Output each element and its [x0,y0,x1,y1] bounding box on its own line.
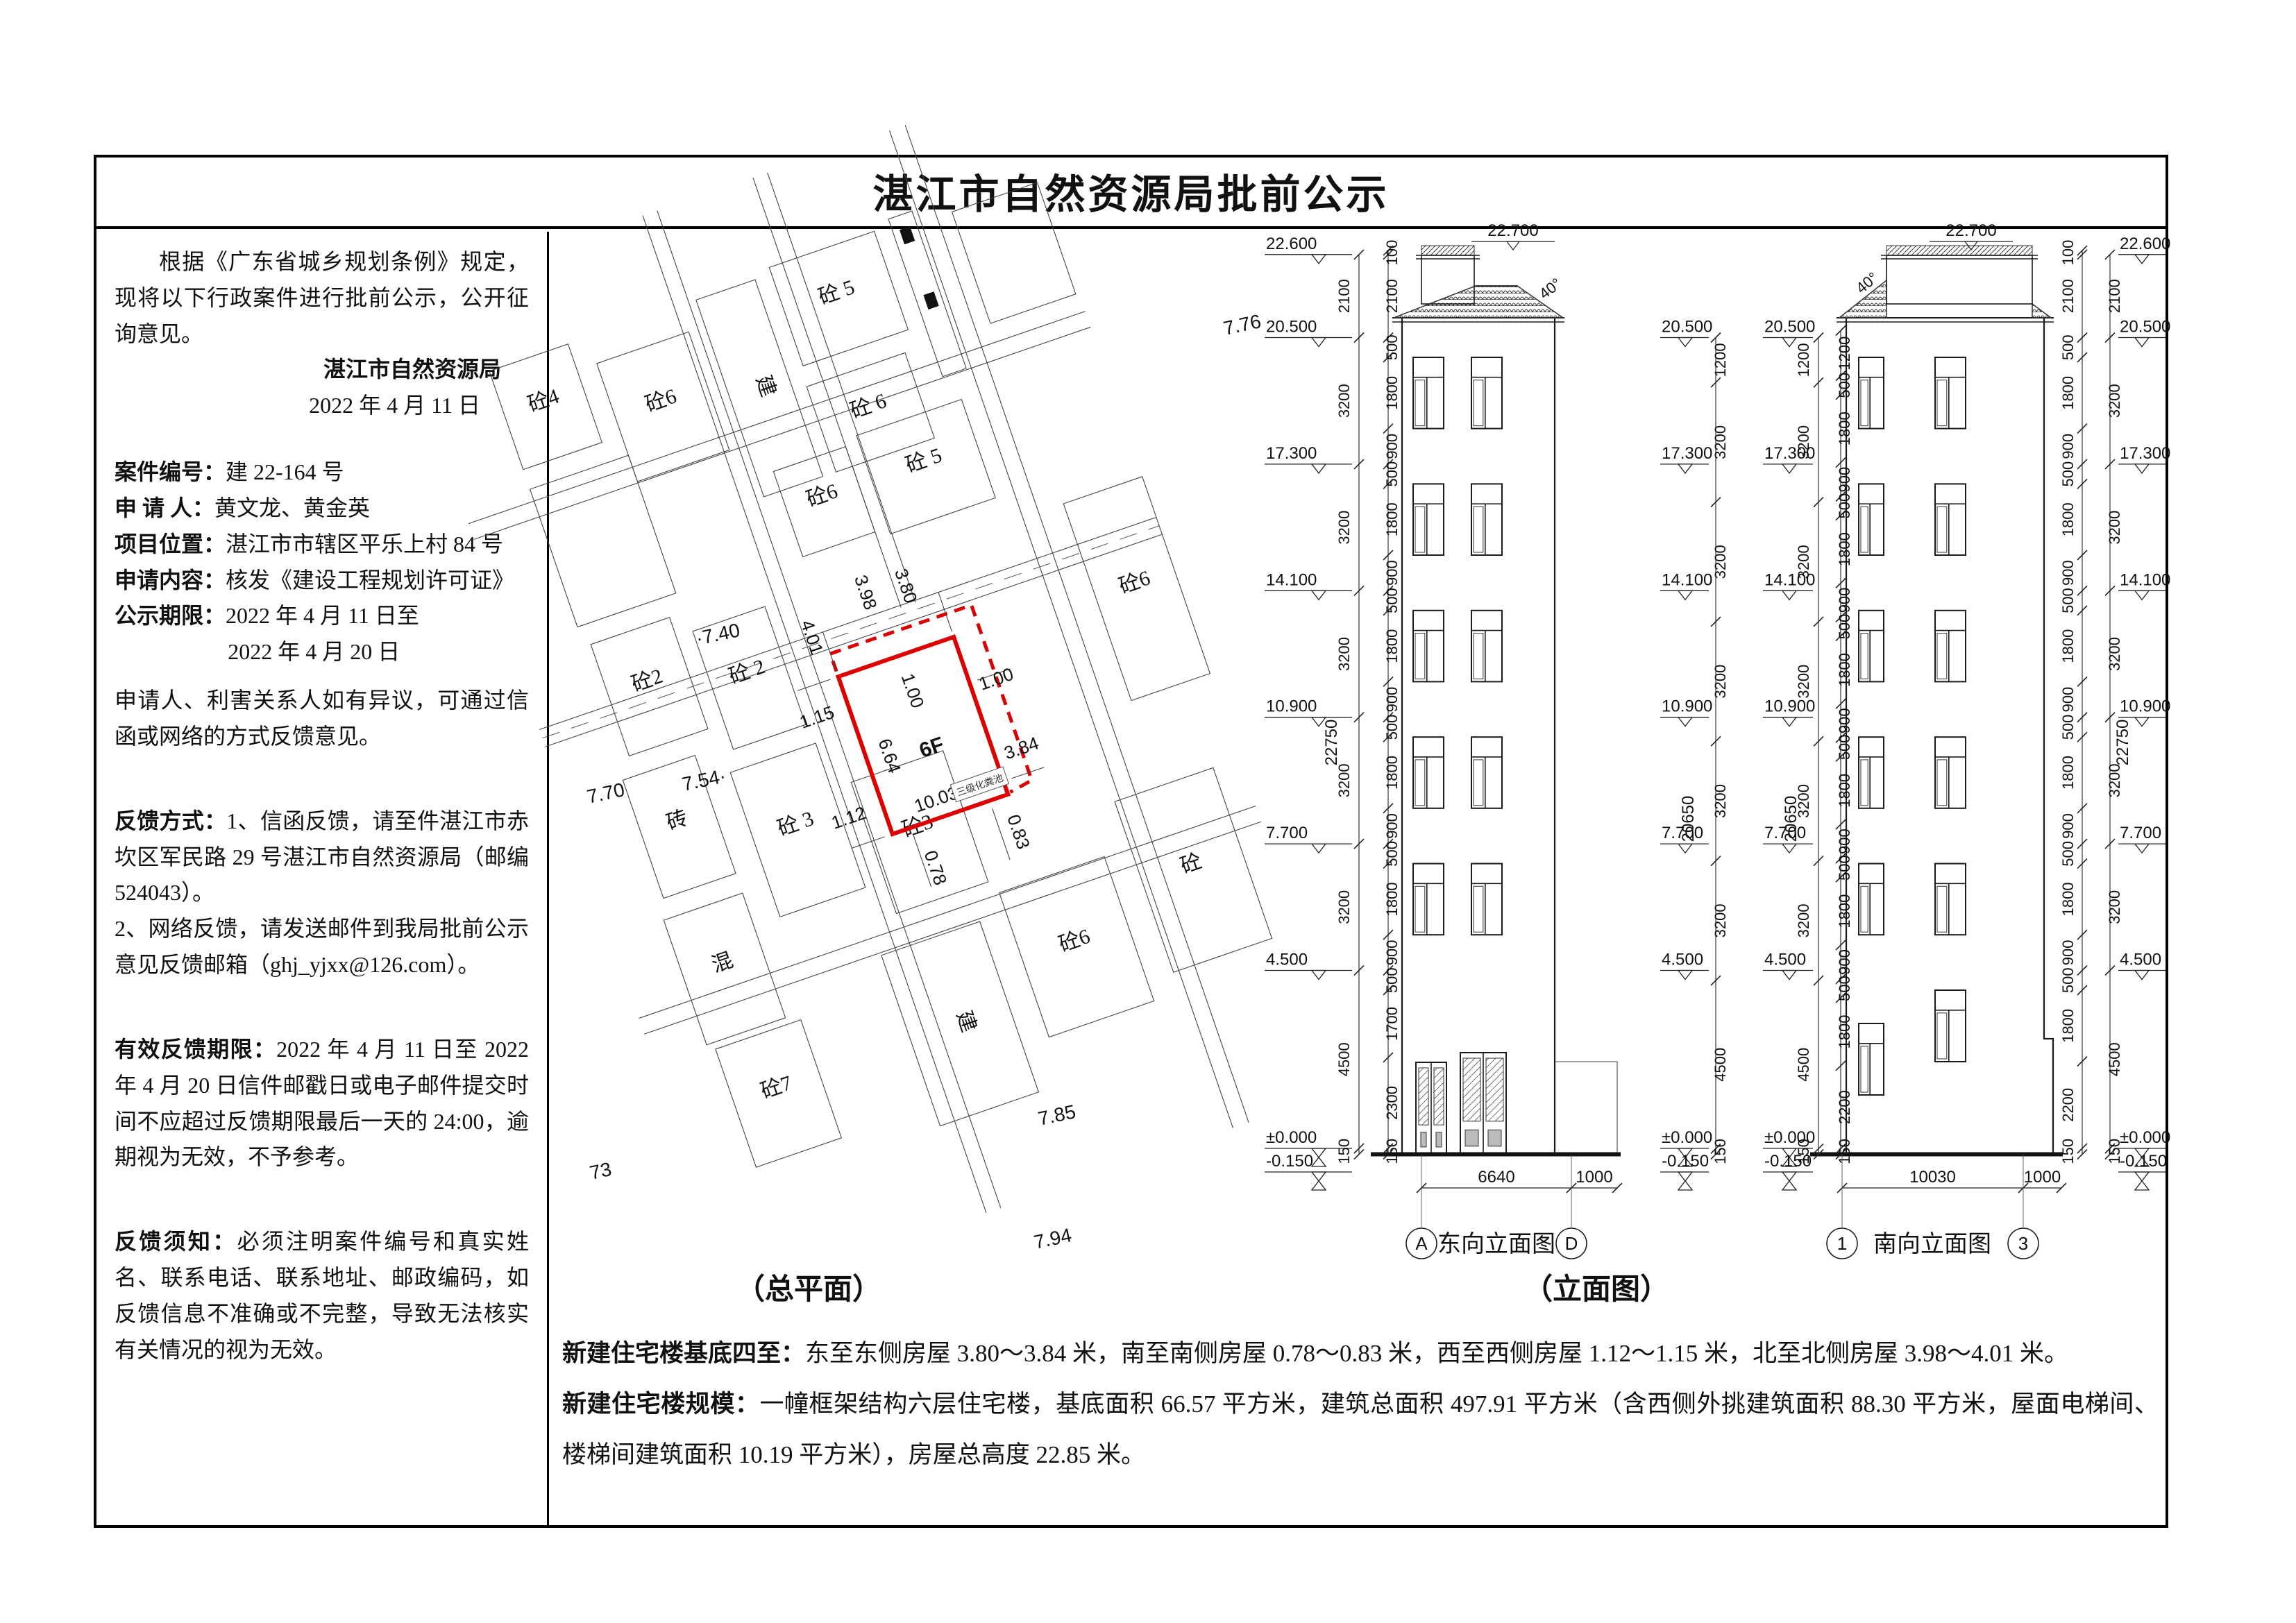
level-triangle [1312,464,1326,473]
dim-value: 3200 [1335,763,1353,797]
dim-value: 3200 [1795,665,1812,699]
plot-dim: 1.00 [976,663,1016,695]
window-casement [1415,760,1425,806]
window [1935,357,1966,429]
level-label: 10.900 [1266,697,1317,716]
dim-value: 3200 [1795,903,1812,937]
footer-note-1: 新建住宅楼基底四至：东至东侧房屋 3.80～3.84 米，南至南侧房屋 0.78… [562,1329,2159,1379]
level-label: -0.150 [1266,1152,1313,1171]
window [1859,737,1884,808]
dim-value: 2200 [2059,1088,2077,1122]
dim-value: 500 [2059,841,2077,867]
plan-building [952,182,1076,323]
street-line [546,534,1163,747]
level-label: ±0.000 [1266,1128,1317,1147]
dim-value: 3200 [2106,384,2123,418]
top-level-label: 22.700 [1945,221,1996,240]
door-panel [1488,1130,1501,1146]
dim-value: 500 [2059,461,2077,487]
dim-value: 3200 [2106,890,2123,924]
spot-elevation: ·7.40 [694,619,742,649]
window [1859,1023,1884,1095]
level-label: 14.100 [2120,570,2170,589]
dim-value: 1800 [2059,629,2077,663]
window [1471,864,1502,935]
south-elevation: 40°22.70020.50017.30014.10010.9007.7004.… [1763,221,2170,1259]
dim-value: 2300 [1383,1086,1401,1120]
level-triangle [1678,717,1692,726]
plan-building-label: 砼 5 [816,275,857,309]
level-triangle [1782,717,1796,726]
bottom-dim-value: 1000 [2024,1168,2061,1187]
level-label: 4.500 [1266,951,1308,969]
plan-building-label: 砼6 [804,479,841,511]
grid-bubble-label: 3 [2018,1233,2028,1254]
window-casement [1937,760,1947,806]
level-triangle [1678,338,1692,347]
street-centerline [542,526,1159,738]
level-triangle [2135,338,2149,347]
dim-value: 150 [1836,1139,1853,1164]
footer-note-2-label: 新建住宅楼规模： [562,1391,759,1418]
door-panel [1436,1132,1442,1147]
dim-value: 3200 [1335,890,1353,924]
window [1935,611,1966,682]
grid-bubble-label: A [1415,1233,1428,1254]
window-casement [1474,507,1483,552]
dim-value: 500 [2059,334,2077,360]
level-label: 4.500 [1662,951,1703,969]
dim-value: 900 [2059,940,2077,965]
plot-dim: 3.84 [1002,732,1042,763]
level-triangle [1678,1172,1692,1181]
plan-building-label: 砼6 [1116,566,1153,598]
dim-value: 3200 [2106,763,2123,797]
window-casement [1861,507,1868,552]
dim-value: 900 [1383,813,1401,839]
penthouse-railing [1421,246,1474,255]
dim-total: 22750 [1322,720,1341,766]
plot-dim: 0.83 [1003,812,1034,852]
window-casement [1474,886,1483,932]
plan-building-label: 砼2 [629,665,666,697]
dim-value: 900 [1383,434,1401,459]
dim-value: 1800 [1836,774,1853,808]
penthouse [1886,255,2032,304]
window [1935,484,1966,555]
plan-building-label: 砼 [1178,849,1205,878]
plan-building-label: 砼7 [758,1071,795,1103]
level-label: 20.500 [1764,318,1815,337]
street-line [890,130,1233,1128]
level-triangle [2135,255,2149,264]
plot-dim: 6.64 [874,736,905,776]
level-triangle [1782,464,1796,473]
dim-value: 4500 [1335,1042,1353,1076]
window-casement [1937,634,1947,679]
window-casement [1474,380,1483,426]
level-label: 17.300 [1662,444,1712,463]
plan-mark [900,226,915,244]
level-label: 7.700 [2120,824,2161,842]
street-line [639,806,1256,1019]
dim-value: 150 [1795,1139,1812,1164]
window [1859,864,1884,935]
street-line [905,125,1249,1122]
dim-value: 1800 [1383,882,1401,916]
dim-value: 900 [2059,813,2077,839]
grid-bubble-label: D [1565,1233,1578,1254]
dim-value: 3200 [1795,545,1812,579]
level-triangle [2135,590,2149,600]
spot-elevation: 7.70 [585,779,627,808]
bottom-dim-value: 1000 [1576,1168,1612,1187]
plan-building-label: 砼6 [643,384,679,416]
dim-value: 3200 [1712,425,1729,459]
dim-value: 1800 [1836,532,1853,566]
level-triangle [1312,338,1326,347]
dim-total: 20650 [1679,796,1698,842]
dim-value: 1800 [1836,894,1853,928]
level-label: 10.900 [1662,697,1712,716]
footer-notes: 新建住宅楼基底四至：东至东侧房屋 3.80～3.84 米，南至南侧房屋 0.78… [562,1329,2159,1480]
east-elevation-caption: 东向立面图 [1437,1231,1555,1257]
dim-value: 2100 [2059,279,2077,313]
level-label: 22.600 [2120,235,2170,253]
window [1471,357,1502,429]
dim-value: 100 [2059,240,2077,266]
dim-total: 20650 [1782,796,1800,842]
window [1471,737,1502,808]
level-triangle [1782,971,1796,980]
dim-value: 1800 [1383,756,1401,790]
level-label: 17.300 [1266,444,1317,463]
dim-value: 1800 [2059,502,2077,536]
dim-value: 900 [1836,588,1853,613]
window-casement [1861,1046,1868,1092]
elevations-caption: （立面图） [1523,1273,1669,1306]
dim-value: 3200 [1335,384,1353,418]
dim-value: 100 [1383,240,1401,266]
plan-building-label: 砼 2 [726,655,768,688]
level-triangle [1312,1148,1326,1157]
footer-note-1-label: 新建住宅楼基底四至： [562,1340,805,1367]
level-triangle [1782,590,1796,600]
plot-ext-line [993,808,1010,860]
dim-value: 500 [1836,373,1853,398]
plot-dim: 1.00 [897,671,929,711]
plan-building-label: 砼 6 [847,389,889,423]
dim-value: 500 [2059,967,2077,993]
side-wall [1555,1062,1617,1155]
dim-value: 500 [1383,715,1401,740]
bottom-dim-value: 6640 [1478,1168,1514,1187]
street-line [539,518,1156,730]
dim-value: 500 [1836,976,1853,1001]
plot-dim: 1.15 [797,702,837,733]
dim-value: 1800 [1383,629,1401,663]
level-triangle [2135,844,2149,853]
level-triangle [1312,971,1326,980]
window [1859,357,1884,429]
plan-rotated-group: 砼4砼6建砼 5砼 6砼 5砼6砼2砼 2砖混砼 3砼3砼6砼7建砼6砼3.98… [392,90,1353,1299]
level-triangle [1782,338,1796,347]
dim-value: 500 [2059,588,2077,613]
level-label: 14.100 [1266,570,1317,589]
plan-building-label: 建 [752,373,780,400]
level-triangle [1312,1157,1326,1166]
dim-total: 22750 [2113,720,2132,766]
dim-value: 500 [1383,967,1401,993]
level-triangle [1782,1181,1796,1190]
dim-value: 500 [1383,461,1401,487]
dim-value: 900 [2059,560,2077,586]
plot-ext-line [797,679,830,690]
dim-value: 1700 [1383,1007,1401,1041]
window-casement [1415,507,1425,552]
dim-value: 500 [1836,734,1853,760]
building-walls [1402,318,1555,1155]
level-label: ±0.000 [1662,1128,1712,1147]
window-casement [1415,886,1425,932]
dim-value: 500 [1383,588,1401,613]
dim-value: 4500 [2106,1042,2123,1076]
dim-value: 150 [1335,1139,1353,1164]
level-triangle [1312,1172,1326,1181]
dim-value: 900 [1383,560,1401,586]
window-casement [1415,634,1425,679]
level-triangle [1678,1181,1692,1190]
dim-value: 1800 [2059,1009,2077,1043]
spot-elevation: 7.94 [1032,1224,1074,1253]
level-label: -0.150 [2120,1152,2167,1171]
window [1935,864,1966,935]
drawing-captions: （总平面）（立面图） [736,1273,1669,1306]
door-glass [1419,1068,1428,1125]
top-level-label: 22.700 [1487,221,1538,240]
window-casement [1937,380,1947,426]
level-triangle [1507,241,1519,250]
dim-value: 150 [1712,1139,1729,1164]
dim-value: 1800 [2059,376,2077,410]
dim-value: 3200 [1335,511,1353,545]
level-label: 20.500 [1266,318,1317,337]
level-triangle [1312,844,1326,853]
dim-value: 900 [2059,687,2077,713]
dim-value: 500 [2059,715,2077,740]
level-triangle [1678,590,1692,600]
dim-value: 4500 [1712,1048,1729,1082]
dim-value: 1800 [1836,1015,1853,1049]
spot-elevation: 73 [588,1158,614,1184]
door-panel [1465,1130,1478,1146]
dim-value: 1800 [1383,376,1401,410]
window-casement [1937,507,1947,552]
level-triangle [2135,971,2149,980]
dim-value: 150 [1383,1139,1401,1164]
level-triangle [1678,464,1692,473]
level-triangle [1312,590,1326,600]
level-label: 14.100 [1662,570,1712,589]
dim-value: 500 [1383,841,1401,867]
footer-note-1-text: 东至东侧房屋 3.80～3.84 米，南至南侧房屋 0.78～0.83 米，西至… [805,1340,2068,1367]
dim-value: 500 [1836,614,1853,640]
dim-value: 900 [1383,687,1401,713]
street-line [644,822,1261,1034]
level-label: 4.500 [1764,951,1806,969]
dim-value: 1800 [2059,882,2077,916]
dim-value: 150 [2059,1139,2077,1164]
plot-dim: 3.98 [850,572,881,613]
level-label: ±0.000 [2120,1128,2170,1147]
window-casement [1861,760,1868,806]
plan-building-label: 砼 5 [903,443,945,477]
level-triangle [1782,844,1796,853]
window [1413,611,1444,682]
plan-building-label: 混 [709,949,736,977]
dim-value: 2100 [1335,279,1353,313]
dim-value: 900 [2059,434,2077,459]
dim-value: 3200 [1712,545,1729,579]
door-glass [1434,1068,1444,1125]
level-label: 7.700 [1266,824,1308,842]
door-glass [1486,1058,1503,1121]
dim-value: 3200 [1712,784,1729,818]
level-label: 17.300 [2120,444,2170,463]
dim-value: 900 [1836,829,1853,854]
window [1471,611,1502,682]
dim-value: 3200 [1712,903,1729,937]
dim-value: 4500 [1795,1048,1812,1082]
window-casement [1861,634,1868,679]
dim-value: 500 [1383,334,1401,360]
level-label: 10.900 [2120,697,2170,716]
spot-elevation: 7.85 [1036,1101,1078,1130]
window-casement [1474,760,1483,806]
footer-note-2-text: 一幢框架结构六层住宅楼，基底面积 66.57 平方米，建筑总面积 497.91 … [562,1391,2159,1468]
building-walls [1846,318,2053,1155]
dim-value: 900 [1836,708,1853,733]
level-triangle [1678,971,1692,980]
dim-value: 900 [1383,940,1401,965]
footer-note-2: 新建住宅楼规模：一幢框架结构六层住宅楼，基底面积 66.57 平方米，建筑总面积… [562,1379,2159,1481]
tile-roof [2032,304,2051,318]
level-triangle [1678,844,1692,853]
plan-building-label: 砖 [664,806,691,835]
level-label: 20.500 [1662,318,1712,337]
dim-value: 3200 [1795,425,1812,459]
window-casement [1937,886,1947,932]
dim-value: 1800 [1383,502,1401,536]
door-panel [1421,1132,1426,1147]
level-label: -0.150 [1662,1152,1709,1171]
window [1413,737,1444,808]
site-plan: 砼4砼6建砼 5砼 6砼 5砼6砼2砼 2砖混砼 3砼3砼6砼7建砼6砼3.98… [392,90,1353,1299]
dim-value: 2100 [2106,279,2123,313]
dim-value: 3200 [2106,511,2123,545]
window-casement [1861,380,1868,426]
dim-value: 1200 [1712,343,1729,377]
dim-value: 1800 [1836,411,1853,445]
window-casement [1861,886,1868,932]
window-casement [1937,1013,1947,1059]
level-label: 20.500 [2120,318,2170,337]
level-label: 4.500 [2120,951,2161,969]
window [1471,484,1502,555]
dim-value: 3200 [1335,637,1353,671]
level-triangle [1312,1181,1326,1190]
dim-value: 500 [1836,855,1853,881]
dim-value: 900 [1836,467,1853,493]
dim-value: 2200 [1836,1090,1853,1124]
street-line [768,173,915,602]
window [1935,990,1966,1062]
window-casement [1474,634,1483,679]
level-label: 10.900 [1764,697,1815,716]
penthouse-railing [1886,246,2032,255]
level-triangle [1312,255,1326,264]
spot-elevation: 7.54· [680,765,728,795]
dim-value: 1200 [1795,343,1812,377]
plot-dim: 0.78 [920,848,952,888]
bottom-dim-value: 10030 [1909,1168,1956,1187]
dim-value: 3200 [2106,637,2123,671]
window [1859,484,1884,555]
plot-dim: 4.01 [797,618,828,658]
plan-building-label: 砼4 [525,384,562,416]
dim-value: 900 [1836,949,1853,975]
level-triangle [2135,464,2149,473]
dim-value: 3200 [1712,665,1729,699]
level-triangle [2135,717,2149,726]
plan-building-label: 砼6 [1056,925,1092,957]
level-triangle [2135,1181,2149,1190]
roof-angle-label: 40° [1536,275,1565,303]
dim-value: 1800 [1836,653,1853,687]
window-casement [1415,380,1425,426]
dim-value: 2100 [1383,279,1401,313]
plot-dim: 3.80 [890,566,922,606]
plot-ext-line [852,837,884,848]
door-glass [1463,1058,1480,1121]
site-plan-caption: （总平面） [736,1273,881,1306]
plan-building-label: 砼 3 [775,807,816,840]
window [1859,611,1884,682]
window [1413,484,1444,555]
dim-value: 1800 [2059,756,2077,790]
dim-value: 500 [1836,493,1853,519]
window [1413,864,1444,935]
east-elevation: 40°22.70022.60020.50017.30014.10010.9007… [1265,221,1729,1259]
public-notice-page: { "page": { "title": "湛江市自然资源局批前公示" }, "… [0,0,2296,1623]
dim-value: 1200 [1836,337,1853,371]
grid-bubble-label: 1 [1837,1233,1847,1254]
level-triangle [1782,1172,1796,1181]
plan-building [530,455,676,627]
level-label: 22.600 [1266,235,1317,253]
spot-elevation: 7.76 [1222,310,1263,339]
plan-building-label: 建 [952,1008,981,1035]
window [1413,357,1444,429]
level-triangle [2135,1172,2149,1181]
plan-mark [923,291,938,309]
south-elevation-caption: 南向立面图 [1873,1231,1991,1257]
plot-dim: 1.12 [829,802,869,833]
window [1935,737,1966,808]
